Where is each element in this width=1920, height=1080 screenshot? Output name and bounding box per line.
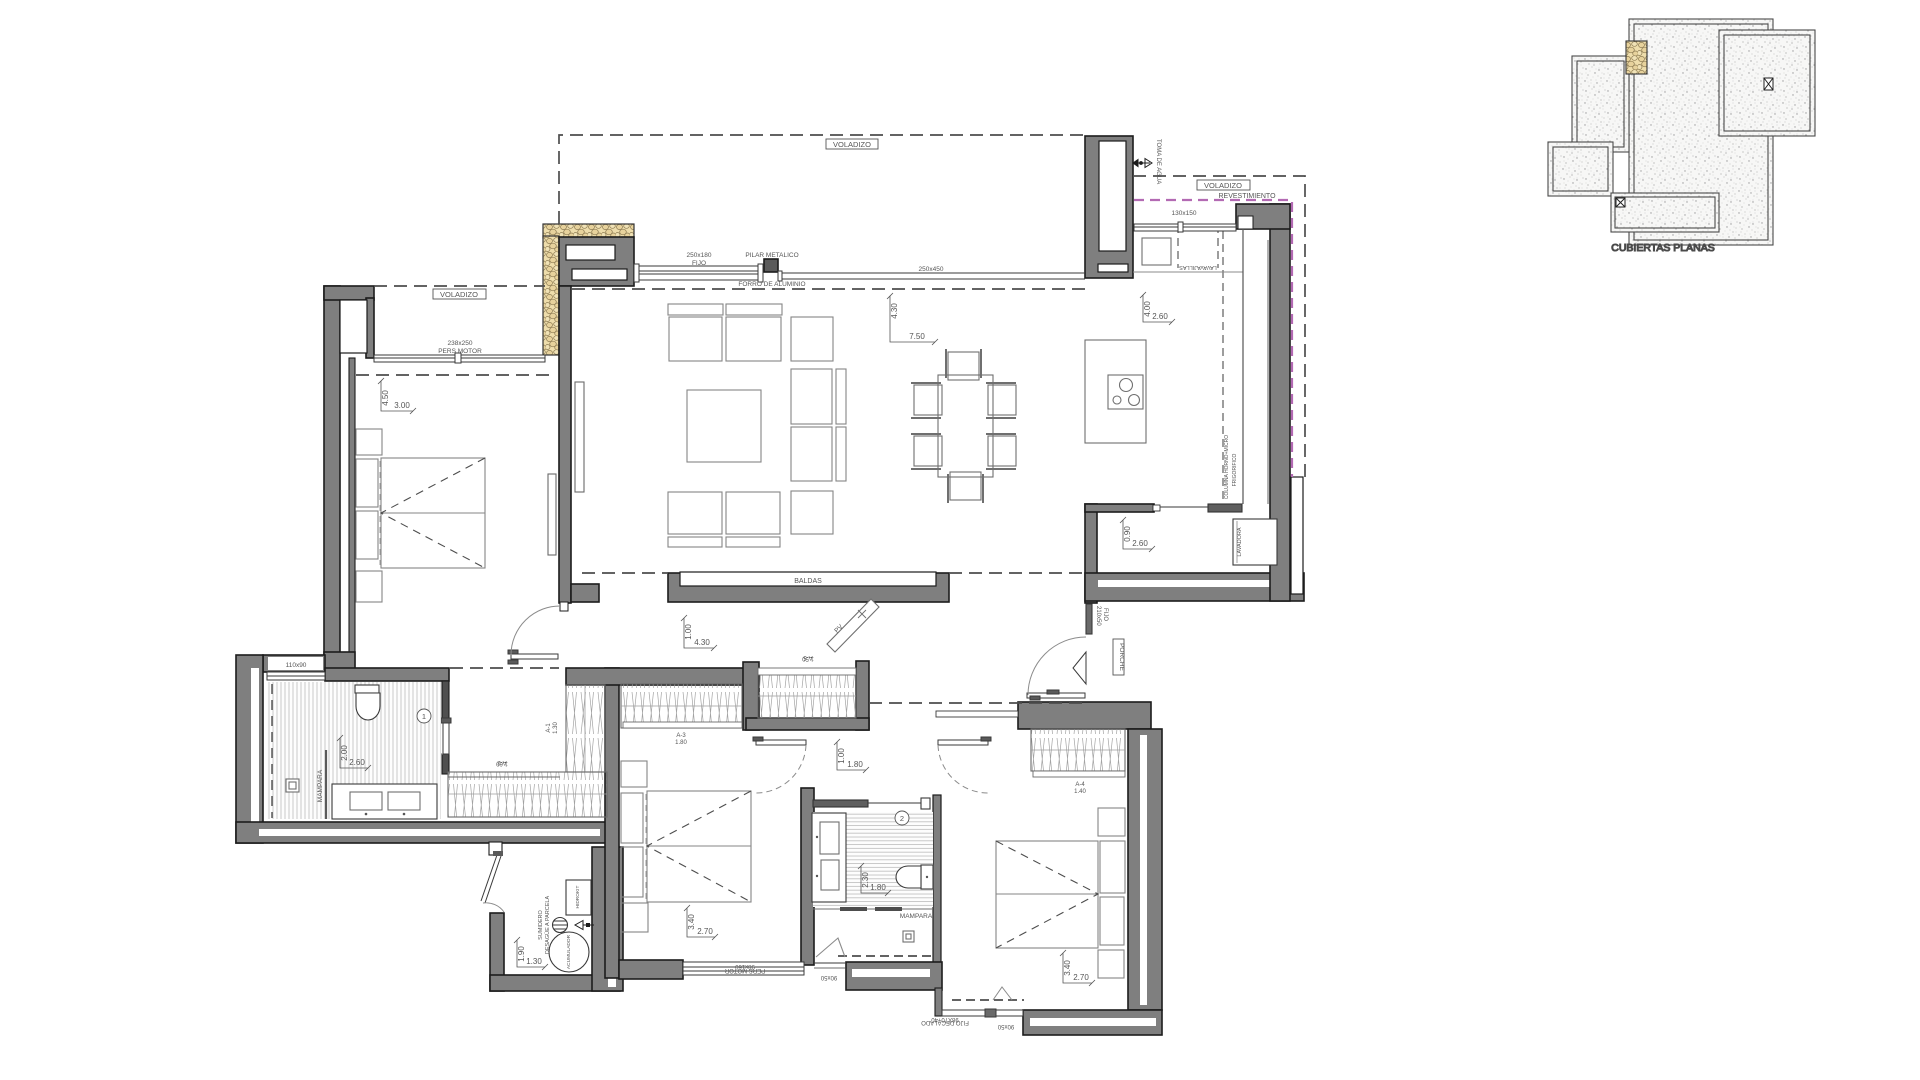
svg-text:7.50: 7.50 <box>909 332 925 341</box>
svg-text:250x180: 250x180 <box>687 252 712 259</box>
svg-text:A-1: A-1 <box>546 723 552 733</box>
svg-text:MAMPARA: MAMPARA <box>317 769 324 802</box>
svg-text:COLUMNA HORNO+MICRO: COLUMNA HORNO+MICRO <box>1224 435 1230 499</box>
svg-text:2.30: 2.30 <box>861 872 870 888</box>
svg-text:90x50: 90x50 <box>820 974 837 980</box>
svg-text:CUBIERTAS PLANAS: CUBIERTAS PLANAS <box>1611 242 1714 254</box>
svg-text:LAVADORA: LAVADORA <box>1237 527 1243 556</box>
svg-text:1.80: 1.80 <box>847 760 863 769</box>
svg-text:0.90: 0.90 <box>1123 526 1132 542</box>
svg-text:3.40: 3.40 <box>687 914 696 930</box>
svg-text:90x50: 90x50 <box>997 1023 1014 1029</box>
svg-text:PORCHE: PORCHE <box>1118 643 1125 671</box>
svg-text:3.00: 3.00 <box>394 401 410 410</box>
svg-text:PERS MOTOR: PERS MOTOR <box>724 967 765 973</box>
svg-text:1.00: 1.00 <box>684 624 693 640</box>
svg-text:BALDAS: BALDAS <box>794 578 822 585</box>
svg-text:LAVAVAJILLAS: LAVAVAJILLAS <box>1179 264 1217 270</box>
svg-text:FIJO: FIJO <box>692 260 706 267</box>
svg-text:2.00: 2.00 <box>340 745 349 761</box>
svg-text:VOLADIZO: VOLADIZO <box>833 140 871 149</box>
svg-text:2.60: 2.60 <box>1152 312 1168 321</box>
svg-text:1: 1 <box>422 712 426 721</box>
svg-text:HIDROKIT: HIDROKIT <box>575 885 581 908</box>
svg-text:110x90: 110x90 <box>286 662 307 669</box>
svg-text:A-4: A-4 <box>1075 782 1085 788</box>
svg-text:2.70: 2.70 <box>697 927 713 936</box>
svg-text:DESAGÜE A PARCELA: DESAGÜE A PARCELA <box>544 896 551 955</box>
svg-text:4.50: 4.50 <box>381 390 390 406</box>
svg-text:PILAR METALICO: PILAR METALICO <box>745 252 798 259</box>
svg-text:3.40: 3.40 <box>1063 960 1072 976</box>
svg-text:250x450: 250x450 <box>919 266 944 273</box>
svg-text:1.30: 1.30 <box>553 722 559 734</box>
svg-text:SUMIDERO: SUMIDERO <box>538 909 544 939</box>
svg-text:1.40: 1.40 <box>1074 789 1086 795</box>
svg-text:A-3: A-3 <box>676 733 686 739</box>
svg-text:210x50: 210x50 <box>1095 606 1101 626</box>
svg-text:1.80: 1.80 <box>870 883 886 892</box>
svg-text:4.30: 4.30 <box>694 638 710 647</box>
svg-text:FIJO DECALADO: FIJO DECALADO <box>921 1019 969 1025</box>
svg-text:ACUMULADOR: ACUMULADOR <box>566 934 572 969</box>
svg-text:FIJO: FIJO <box>1102 608 1108 621</box>
svg-text:VOLADIZO: VOLADIZO <box>1204 181 1242 190</box>
svg-text:1.60: 1.60 <box>496 760 508 766</box>
svg-text:1.50: 1.50 <box>802 655 814 661</box>
svg-text:VOLADIZO: VOLADIZO <box>440 290 478 299</box>
svg-text:4.00: 4.00 <box>1143 301 1152 317</box>
svg-text:1.80: 1.80 <box>675 740 687 746</box>
svg-text:1.90: 1.90 <box>517 946 526 962</box>
svg-text:PERS MOTOR: PERS MOTOR <box>438 348 482 355</box>
svg-text:2.70: 2.70 <box>1073 973 1089 982</box>
svg-text:FRIGORIFICO: FRIGORIFICO <box>1232 454 1238 487</box>
svg-text:1.30: 1.30 <box>526 957 542 966</box>
svg-text:130x150: 130x150 <box>1172 210 1197 217</box>
svg-text:MAMPARA: MAMPARA <box>900 913 933 920</box>
svg-text:FORRO DE ALUMINIO: FORRO DE ALUMINIO <box>738 281 805 288</box>
svg-text:4.30: 4.30 <box>890 303 899 319</box>
svg-text:2.60: 2.60 <box>349 758 365 767</box>
svg-text:238x250: 238x250 <box>448 340 473 347</box>
svg-text:2.60: 2.60 <box>1132 539 1148 548</box>
svg-text:TOMA DE AGUA: TOMA DE AGUA <box>1155 139 1161 184</box>
svg-text:2: 2 <box>900 814 904 823</box>
svg-text:REVESTIMIENTO: REVESTIMIENTO <box>1218 193 1276 200</box>
svg-text:1.00: 1.00 <box>837 748 846 764</box>
